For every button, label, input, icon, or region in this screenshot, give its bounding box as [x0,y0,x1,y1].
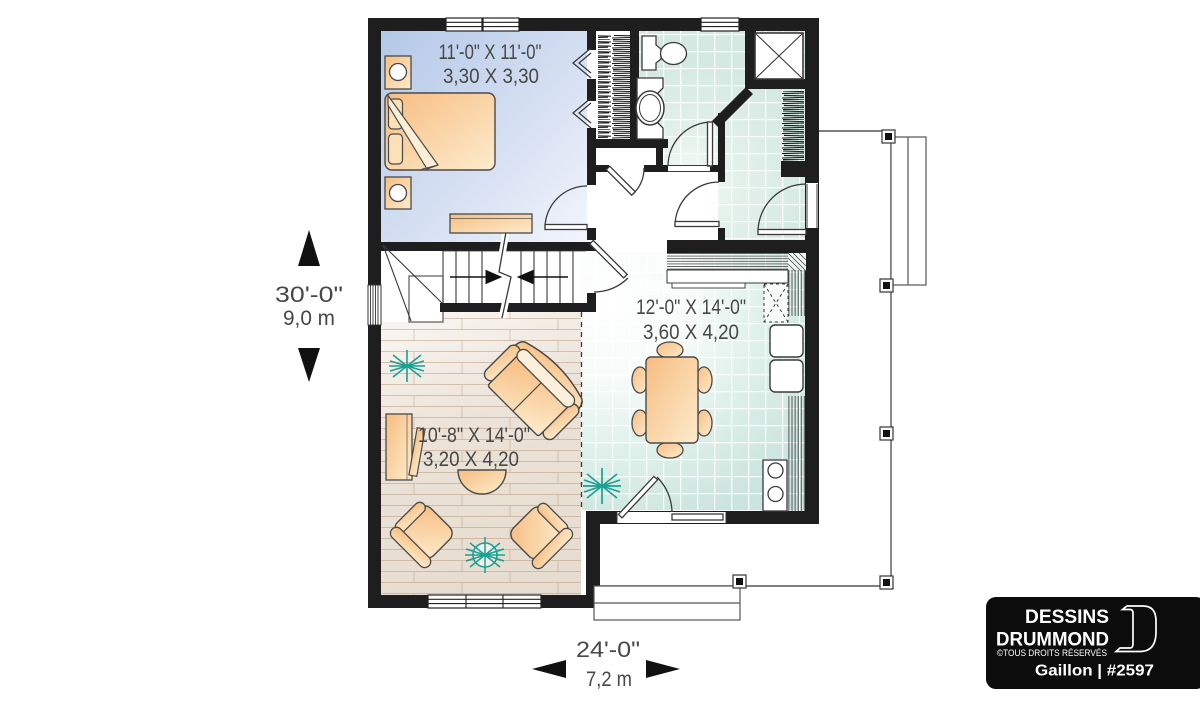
svg-text:©TOUS DROITS RÉSERVÉS: ©TOUS DROITS RÉSERVÉS [997,648,1107,659]
svg-text:12'-0" X 14'-0": 12'-0" X 14'-0" [636,296,746,319]
svg-text:Gaillon | #2597: Gaillon | #2597 [1035,663,1154,680]
svg-text:30'-0": 30'-0" [275,282,343,307]
svg-text:3,60 X 4,20: 3,60 X 4,20 [643,321,739,344]
svg-text:3,30 X 3,30: 3,30 X 3,30 [443,65,539,88]
svg-text:10'-8" X 14'-0": 10'-8" X 14'-0" [418,424,530,447]
svg-text:24'-0": 24'-0" [576,637,640,662]
svg-text:11'-0" X 11'-0": 11'-0" X 11'-0" [439,41,542,64]
svg-text:DESSINS: DESSINS [1025,607,1109,628]
svg-text:9,0 m: 9,0 m [283,307,335,330]
svg-text:7,2 m: 7,2 m [586,668,632,691]
svg-text:3,20 X 4,20: 3,20 X 4,20 [423,448,519,471]
